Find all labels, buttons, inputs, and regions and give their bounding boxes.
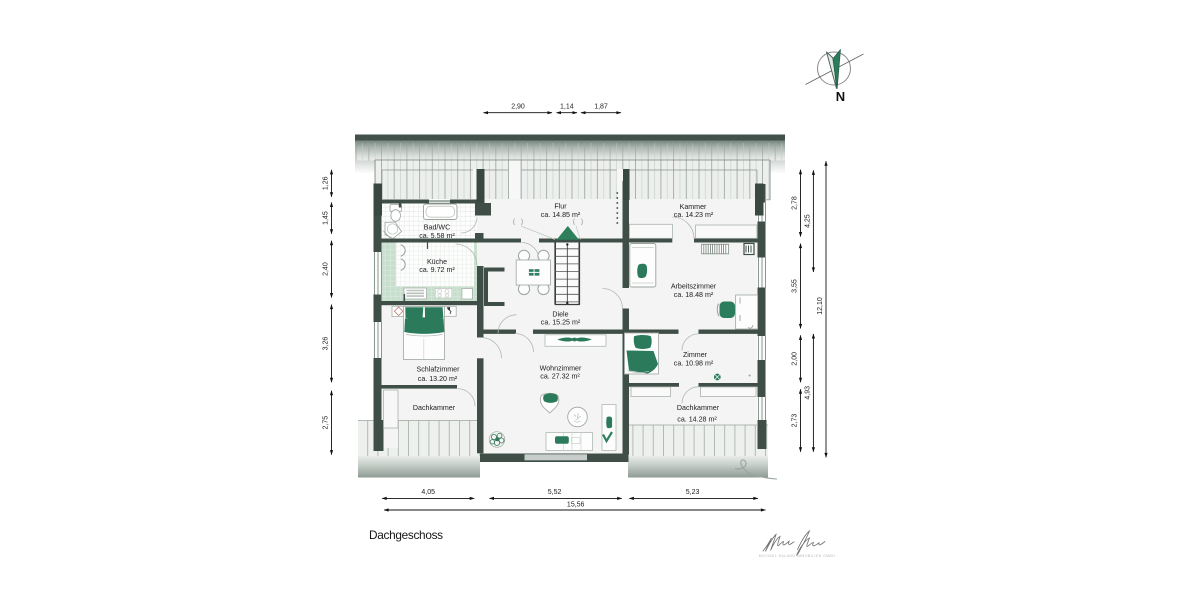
svg-text:5,23: 5,23	[686, 489, 700, 496]
svg-text:Dachkammer: Dachkammer	[677, 404, 720, 412]
svg-text:3,55: 3,55	[792, 279, 799, 293]
svg-text:Wohnzimmer: Wohnzimmer	[540, 364, 582, 372]
svg-text:ca. 10.98 m²: ca. 10.98 m²	[674, 360, 714, 368]
svg-text:2,90: 2,90	[511, 104, 525, 111]
svg-text:2,75: 2,75	[323, 416, 330, 430]
svg-text:ca. 13.20 m²: ca. 13.20 m²	[418, 375, 458, 383]
svg-text:Bad/WC: Bad/WC	[424, 224, 450, 232]
svg-text:1,87: 1,87	[594, 104, 608, 111]
svg-text:4,25: 4,25	[804, 214, 811, 228]
svg-text:N: N	[836, 89, 845, 104]
svg-text:Flur: Flur	[554, 203, 567, 211]
svg-text:3,26: 3,26	[323, 337, 330, 351]
svg-text:Dachkammer: Dachkammer	[413, 404, 456, 412]
svg-text:2,78: 2,78	[792, 196, 799, 210]
svg-text:15,56: 15,56	[567, 502, 585, 509]
svg-text:MICHAEL HALAND IMMOBILIEN GMBH: MICHAEL HALAND IMMOBILIEN GMBH	[759, 554, 836, 558]
svg-text:ca. 14.85 m²: ca. 14.85 m²	[541, 211, 581, 219]
svg-text:5,52: 5,52	[548, 489, 562, 496]
svg-text:ca. 5.58 m²: ca. 5.58 m²	[419, 232, 455, 240]
svg-text:Arbeitszimmer: Arbeitszimmer	[671, 283, 717, 291]
svg-text:ca. 27.32 m²: ca. 27.32 m²	[540, 372, 580, 380]
svg-text:Dachgeschoss: Dachgeschoss	[369, 528, 443, 542]
svg-text:Zimmer: Zimmer	[683, 351, 708, 359]
svg-text:Schlafzimmer: Schlafzimmer	[417, 365, 461, 373]
svg-text:12,10: 12,10	[817, 297, 824, 315]
svg-text:ca. 15.25 m²: ca. 15.25 m²	[541, 318, 581, 326]
svg-text:2,73: 2,73	[792, 414, 799, 428]
svg-text:1,26: 1,26	[323, 176, 330, 190]
svg-text:Küche: Küche	[427, 258, 447, 266]
svg-text:ca. 9.72 m²: ca. 9.72 m²	[419, 266, 455, 274]
svg-text:ca. 14.23 m²: ca. 14.23 m²	[674, 211, 714, 219]
svg-text:1,14: 1,14	[560, 104, 574, 111]
svg-text:Kammer: Kammer	[680, 203, 707, 211]
svg-text:Diele: Diele	[552, 310, 568, 318]
svg-text:ca. 18.48 m²: ca. 18.48 m²	[674, 291, 714, 299]
svg-text:2,00: 2,00	[792, 352, 799, 366]
svg-text:4,05: 4,05	[421, 489, 435, 496]
svg-text:4,93: 4,93	[804, 386, 811, 400]
svg-text:2,40: 2,40	[323, 262, 330, 276]
svg-text:ca. 14.28 m²: ca. 14.28 m²	[677, 415, 717, 423]
svg-text:1,45: 1,45	[323, 211, 330, 225]
